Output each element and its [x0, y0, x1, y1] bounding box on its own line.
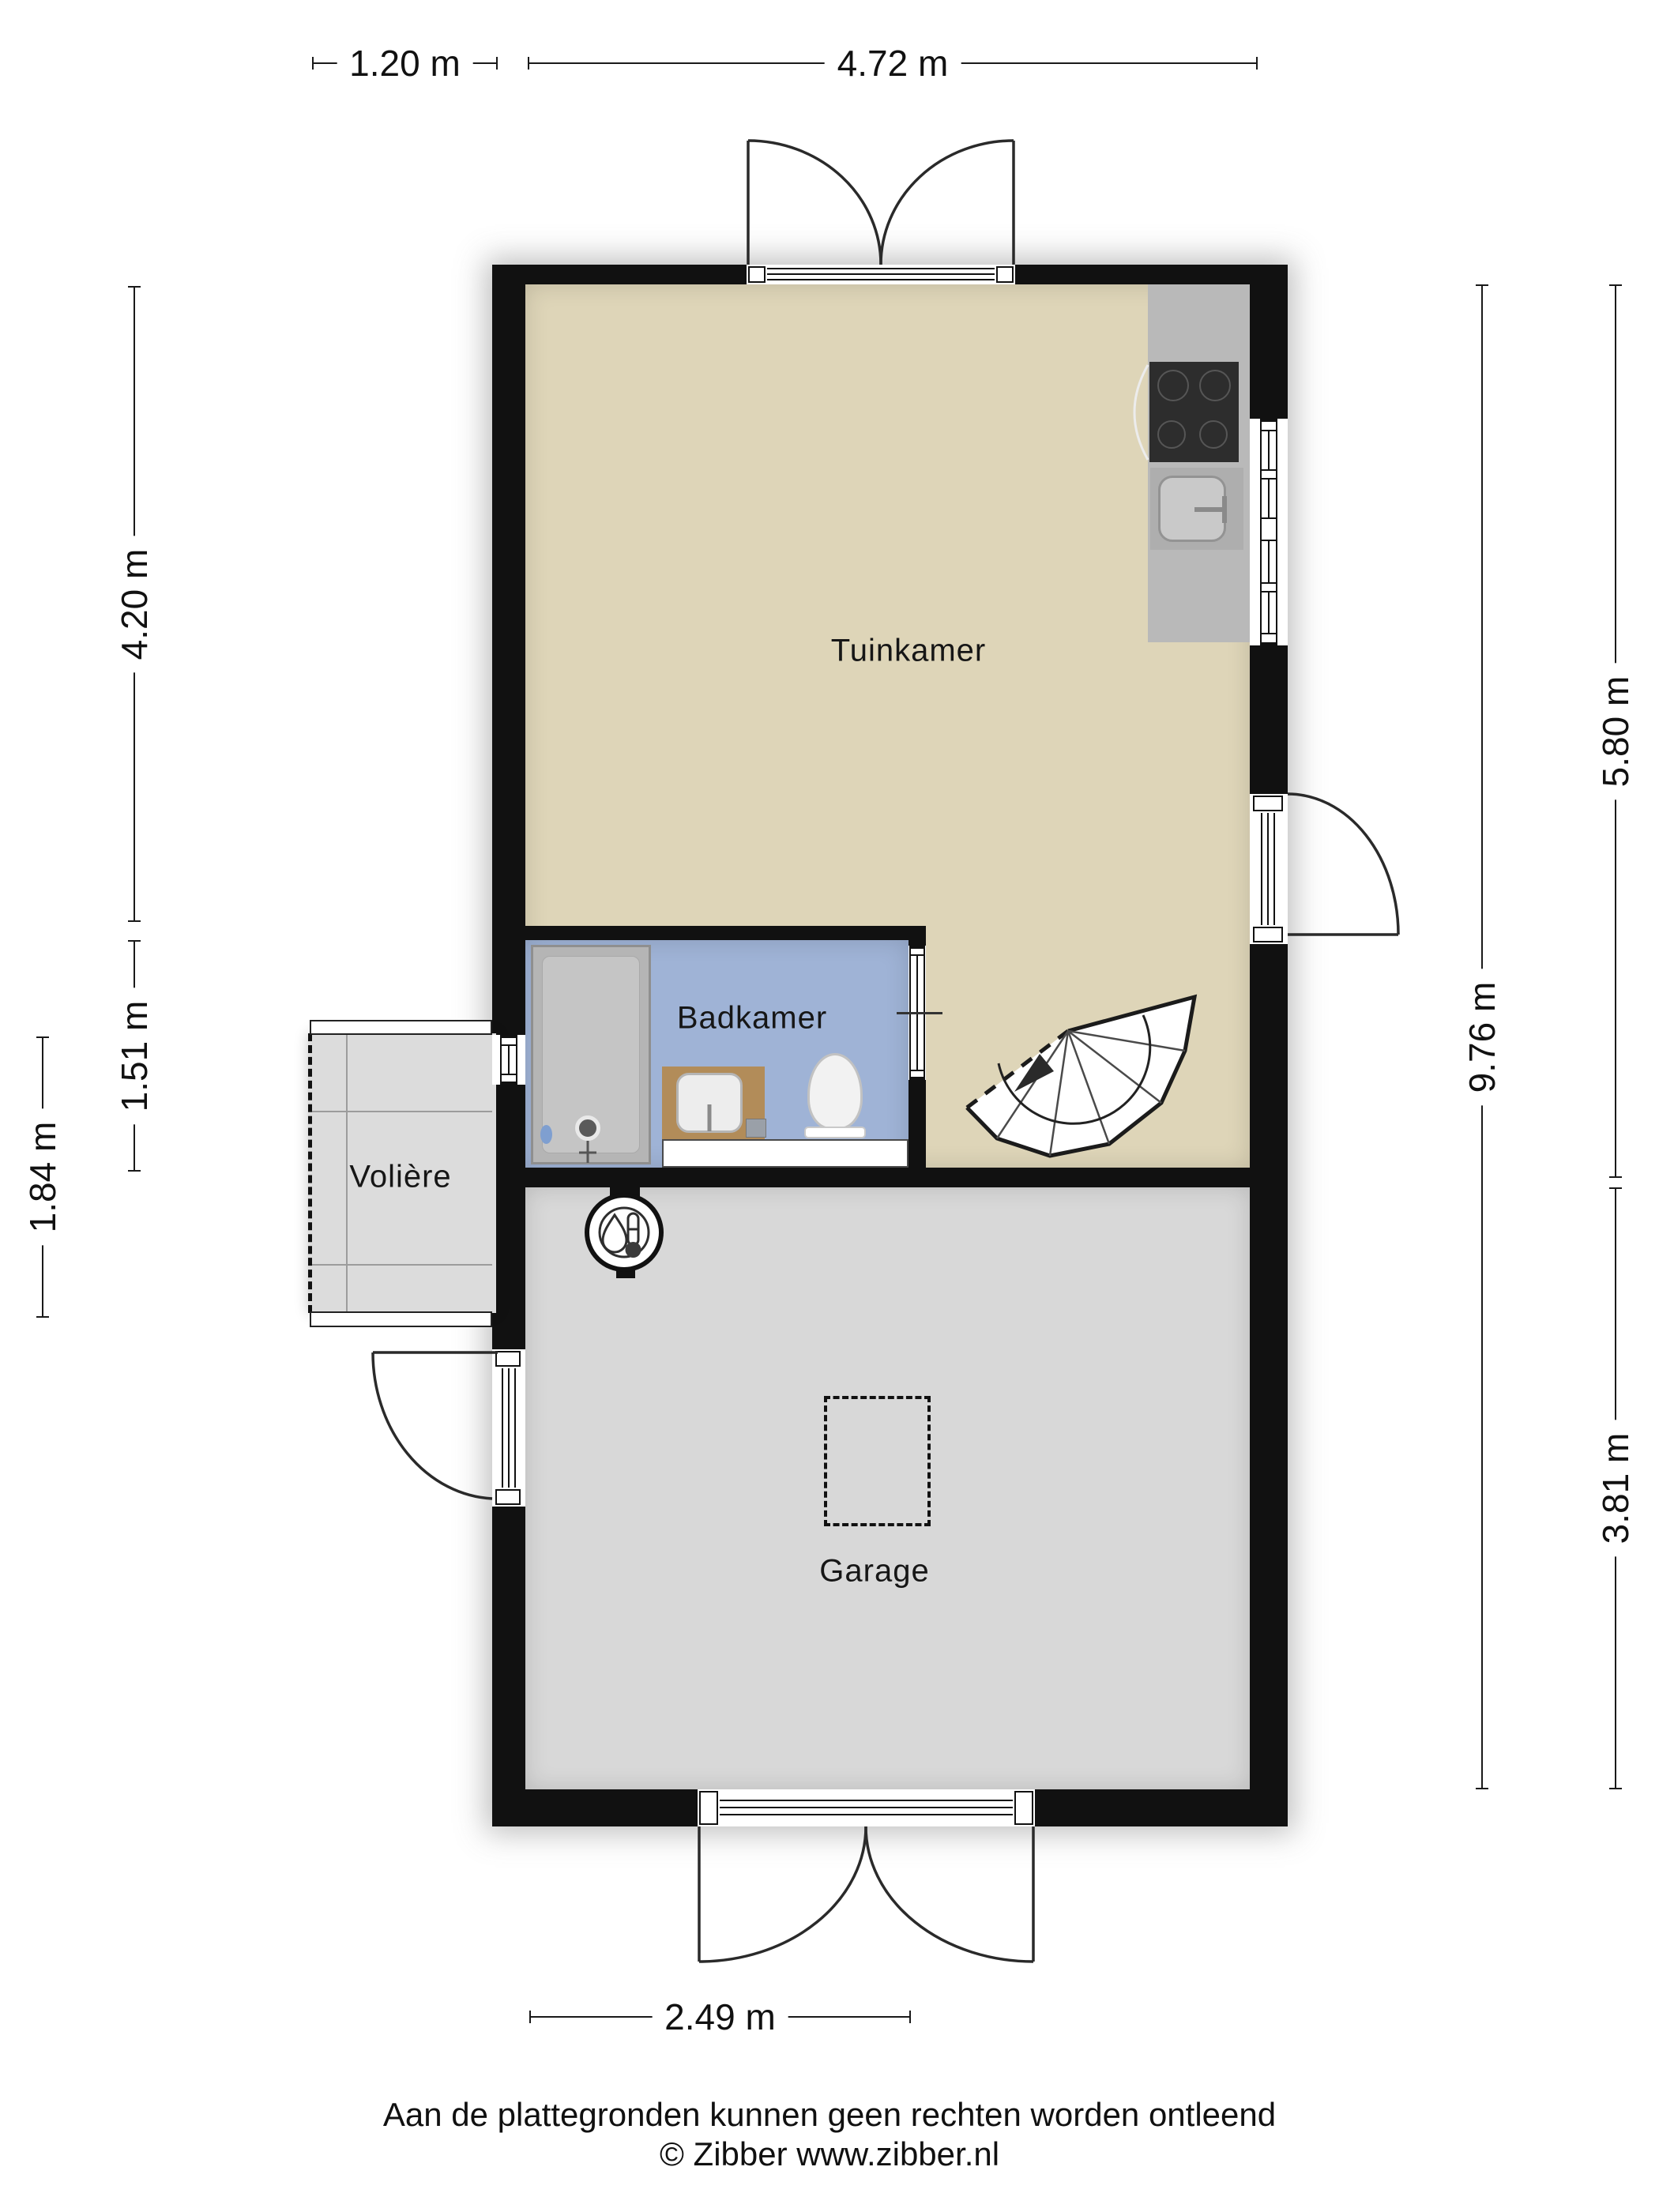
- dimension-bottom: 2.49 m: [529, 2011, 911, 2023]
- dimension-left-lower: 1.84 m: [36, 1036, 49, 1318]
- door-opening-right: [1250, 794, 1288, 944]
- room-label-tuinkamer: Tuinkamer: [831, 634, 986, 669]
- dimension-right-lower: 3.81 m: [1609, 1187, 1622, 1789]
- footer: Aan de plattegronden kunnen geen rechten…: [0, 2095, 1659, 2174]
- burner: [1157, 370, 1189, 401]
- door-opening-bottom: [698, 1789, 1035, 1826]
- soap-dish: [540, 1125, 552, 1144]
- dimension-left-upper: 4.20 m: [128, 286, 141, 922]
- voliere-grid-line: [312, 1264, 492, 1266]
- room-label-badkamer: Badkamer: [677, 1001, 827, 1036]
- door-swing-arc: [866, 1826, 1033, 1962]
- footer-disclaimer: Aan de plattegronden kunnen geen rechten…: [0, 2095, 1659, 2135]
- door-swing-arc: [373, 1352, 492, 1499]
- dimension-top-left: 1.20 m: [312, 57, 498, 70]
- voliere-bottom-sill: [310, 1311, 492, 1327]
- door-left: [373, 1352, 498, 1499]
- footer-credit: © Zibber www.zibber.nl: [0, 2135, 1659, 2174]
- window-icon: [1250, 419, 1288, 645]
- room-label-voliere: Volière: [349, 1160, 451, 1195]
- dimension-right-upper: 5.80 m: [1609, 284, 1622, 1178]
- toilet-icon: [807, 1053, 863, 1130]
- floorplan-canvas: Tuinkamer Badkamer Volière Garage 1.20 m…: [0, 0, 1659, 2212]
- door-opening-top: [747, 265, 1015, 284]
- voliere-grid-line: [312, 1111, 492, 1112]
- washbasin-icon: [676, 1073, 743, 1133]
- window-icon: [492, 1035, 525, 1085]
- badkamer-top-wall: [525, 926, 926, 940]
- bathroom-counter: [662, 1139, 908, 1168]
- burner: [1199, 420, 1228, 449]
- double-doors-bottom: [699, 1826, 1033, 1962]
- vanity-accessory: [746, 1119, 766, 1138]
- kitchen-sink-icon: [1158, 476, 1226, 542]
- french-doors-top: [748, 141, 1014, 265]
- garage-hatch-dashed-box: [824, 1396, 931, 1526]
- door-right: [1288, 794, 1398, 935]
- voliere-grid-line: [346, 1033, 348, 1313]
- door-swing-arc: [881, 141, 1014, 265]
- door-swing-arc: [1288, 794, 1398, 935]
- voliere-top-sill: [310, 1020, 492, 1035]
- toilet-seat: [804, 1127, 866, 1138]
- shower-drain: [575, 1115, 600, 1141]
- partition-window-tick: [897, 1012, 942, 1014]
- door-swing-arc: [748, 141, 881, 265]
- dimension-top-right: 4.72 m: [528, 57, 1258, 70]
- door-opening-left: [492, 1349, 525, 1507]
- burner: [1199, 370, 1231, 401]
- dimension-right-inner: 9.76 m: [1476, 284, 1488, 1789]
- kitchen-counter: [1148, 284, 1250, 642]
- door-swing-arc: [699, 1826, 866, 1962]
- burner: [1157, 420, 1186, 449]
- room-label-garage: Garage: [819, 1554, 929, 1589]
- dimension-left-middle: 1.51 m: [128, 940, 141, 1172]
